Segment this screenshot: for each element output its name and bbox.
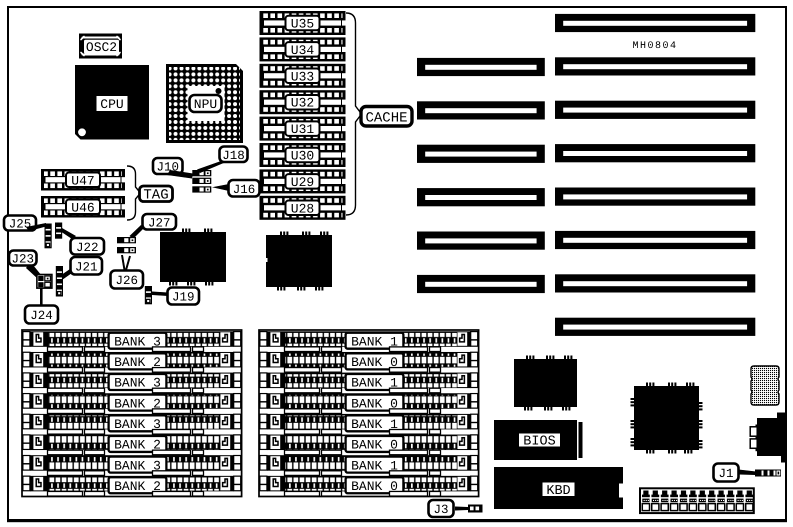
svg-text:J21: J21 [75, 260, 98, 274]
svg-text:U35: U35 [291, 17, 314, 32]
svg-text:J26: J26 [115, 274, 138, 288]
svg-text:J27: J27 [148, 216, 171, 230]
svg-text:J22: J22 [76, 241, 99, 255]
svg-text:U29: U29 [291, 175, 314, 190]
svg-text:J18: J18 [222, 149, 245, 163]
svg-text:U30: U30 [291, 149, 314, 164]
svg-text:J3: J3 [433, 503, 448, 517]
svg-text:J1: J1 [718, 467, 733, 481]
svg-text:KBD: KBD [546, 484, 570, 499]
svg-text:J19: J19 [172, 291, 195, 305]
svg-text:NPU: NPU [194, 97, 217, 112]
svg-text:J24: J24 [30, 309, 53, 323]
svg-text:U32: U32 [291, 96, 314, 111]
svg-text:J23: J23 [11, 253, 34, 267]
svg-text:BIOS: BIOS [523, 434, 555, 449]
svg-text:OSC2: OSC2 [86, 40, 117, 55]
svg-text:TAG: TAG [143, 187, 168, 203]
svg-text:U34: U34 [291, 43, 315, 58]
svg-text:CPU: CPU [100, 97, 123, 112]
svg-text:MH0804: MH0804 [632, 41, 677, 52]
svg-text:J16: J16 [233, 183, 256, 197]
svg-text:U28: U28 [291, 201, 314, 216]
svg-text:U46: U46 [71, 200, 94, 215]
svg-text:U33: U33 [291, 69, 314, 84]
svg-text:U47: U47 [71, 173, 94, 188]
svg-text:U31: U31 [291, 122, 315, 137]
svg-text:CACHE: CACHE [365, 110, 407, 126]
